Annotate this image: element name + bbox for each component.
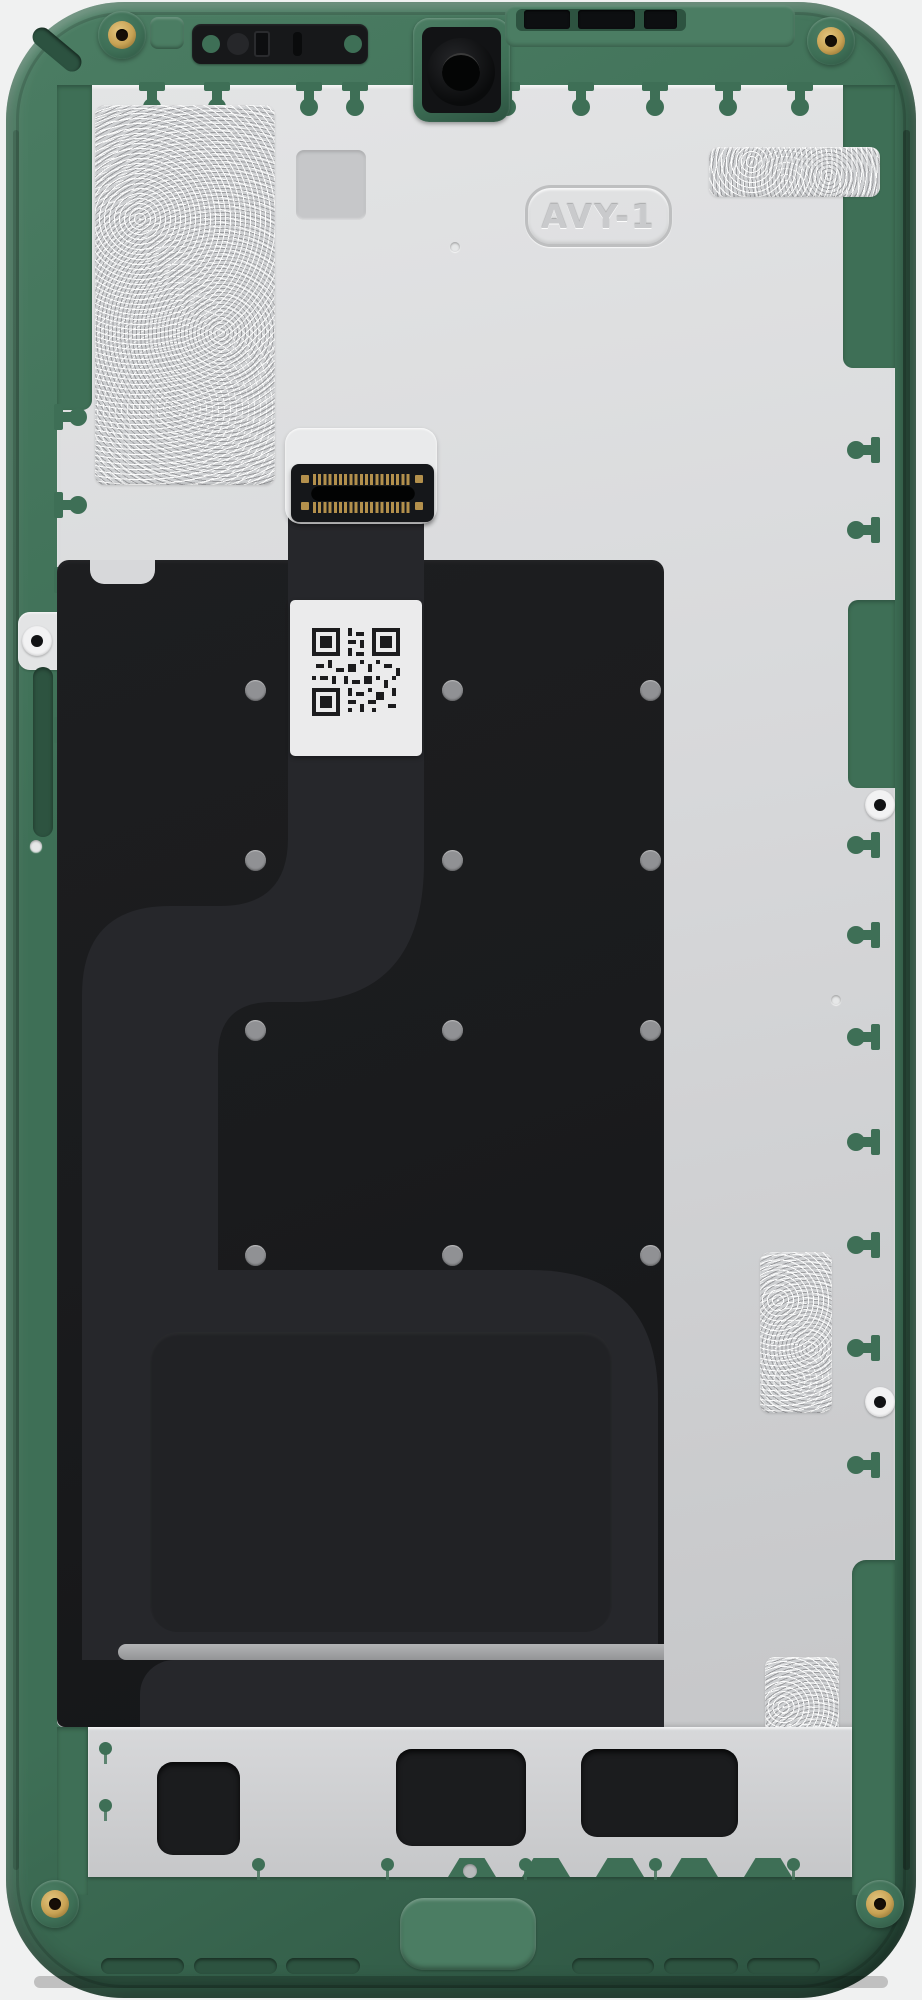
jigsaw-tab-icon (723, 85, 733, 105)
jigsaw-tab-icon (857, 930, 877, 940)
earpiece-screw-boss-left (202, 35, 220, 53)
frame-left-wall-shadow (13, 130, 19, 1870)
connector-corner-pad (415, 475, 423, 483)
earpiece-sensor-hole (227, 33, 249, 55)
shield-screw-hole (865, 790, 895, 820)
jigsaw-tab-icon (795, 85, 805, 105)
speaker-slot (101, 1958, 184, 1974)
rivet-dot (99, 1799, 112, 1812)
speaker-slot (286, 1958, 360, 1974)
jigsaw-tab-icon (212, 85, 222, 105)
flex-inner-layer (150, 1332, 612, 1632)
qr-code-icon (312, 628, 400, 716)
rivet-dot (99, 1742, 112, 1755)
jigsaw-tab-icon (857, 840, 877, 850)
product-photo-smartphone-frame: AVY-1 (0, 0, 922, 2000)
speaker-slot (194, 1958, 277, 1974)
shield-dimple (831, 995, 841, 1005)
earpiece-screw-boss-right (344, 35, 362, 53)
antenna-slot (524, 10, 570, 29)
rivet-dot (252, 1858, 265, 1871)
rivet-dot (519, 1858, 532, 1871)
frame-cutout-top-right (843, 85, 895, 368)
bracket-component-cutout (396, 1749, 526, 1846)
frame-bottom-lip-shadow (34, 1976, 888, 1988)
jigsaw-tab-icon (857, 1240, 877, 1250)
brass-screw-insert-icon (807, 17, 855, 65)
rivet-dot (787, 1858, 800, 1871)
bracket-component-cutout (157, 1762, 240, 1855)
rivet-dot (649, 1858, 662, 1871)
jigsaw-tab-icon (857, 1032, 877, 1042)
adhesive-foil-patch (760, 1252, 832, 1413)
connector-corner-pad (415, 502, 423, 510)
connector-corner-pad (301, 475, 309, 483)
shield-dimple (450, 242, 460, 252)
bracket-component-cutout (581, 1749, 738, 1837)
speaker-slot (572, 1958, 654, 1974)
brass-screw-insert-icon (98, 11, 146, 59)
earpiece-contact-window (254, 31, 270, 57)
embossed-model-plate: AVY-1 (525, 185, 672, 247)
bottom-frame-boss (400, 1898, 536, 1970)
metal-edge-strip (118, 1644, 664, 1660)
shield-screw-hole (865, 1387, 895, 1417)
frame-cutout-top-left (57, 85, 92, 410)
speaker-slot (664, 1958, 738, 1974)
connector-corner-pad (301, 502, 309, 510)
flex-bottom-layer (140, 1660, 664, 1727)
earpiece-slot (293, 32, 302, 56)
brass-screw-insert-icon (856, 1880, 904, 1928)
shield-screw-hole (22, 626, 52, 656)
antenna-slot (644, 10, 677, 29)
jigsaw-tab-icon (576, 85, 586, 105)
model-code-text: AVY-1 (541, 197, 656, 236)
jigsaw-tab-icon (857, 1137, 877, 1147)
connector-socket-slot (311, 485, 415, 501)
frame-cutout-right-mid (848, 600, 895, 788)
frame-left-button-pocket (33, 667, 53, 837)
rivet-dot (381, 1858, 394, 1871)
frame-cutout-bottom-left (57, 1727, 88, 1895)
shield-dimple (30, 840, 42, 852)
jigsaw-tab-icon (350, 85, 360, 105)
jigsaw-tab-icon (857, 525, 877, 535)
connector-pin-row-bottom (313, 502, 412, 513)
frame-square-boss (150, 17, 184, 49)
frame-right-wall-shadow (903, 130, 910, 1870)
speaker-slot (747, 1958, 820, 1974)
metal-square-patch (296, 150, 366, 220)
connector-pin-row-top (313, 474, 412, 485)
brass-screw-insert-icon (31, 1880, 79, 1928)
jigsaw-tab-icon (857, 445, 877, 455)
jigsaw-tab-icon (857, 1343, 877, 1353)
earpiece-speaker-recess (192, 24, 368, 64)
frame-cutout-bottom-right (852, 1560, 895, 1895)
jigsaw-tab-icon (304, 85, 314, 105)
jigsaw-tab-icon (650, 85, 660, 105)
antenna-slot (578, 10, 635, 29)
front-camera-lens-icon (442, 53, 480, 91)
jigsaw-tab-icon (857, 1460, 877, 1470)
rivet-dot-gray (463, 1864, 477, 1878)
jigsaw-tab-icon (147, 85, 157, 105)
adhesive-foil-patch (709, 147, 880, 197)
